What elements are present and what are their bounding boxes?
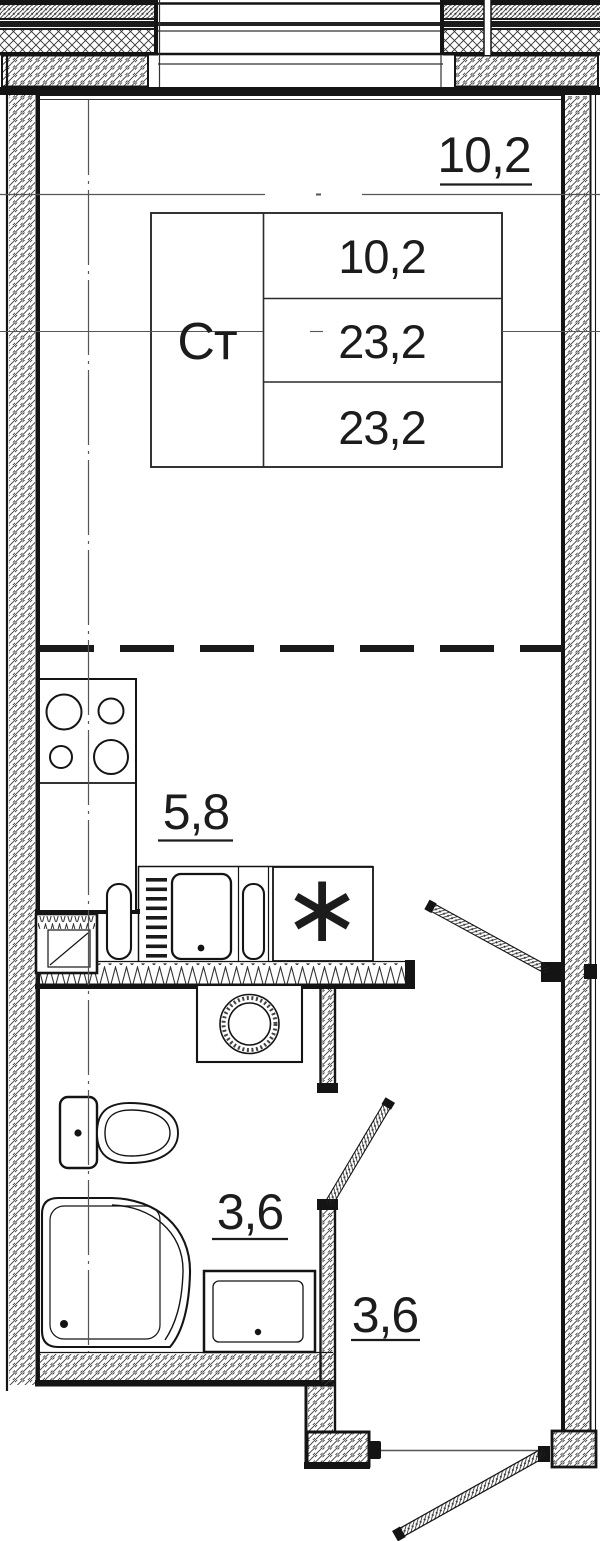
fridge-asterisk-icon: ∗ xyxy=(282,854,362,964)
washing-machine xyxy=(197,985,302,1062)
kitchen-area-label: 5,8 xyxy=(163,784,230,840)
hall-area-label: 3,6 xyxy=(352,1287,419,1343)
sink-drain-icon xyxy=(255,1329,261,1335)
bathroom-door-leaf xyxy=(323,1097,395,1208)
entry-threshold xyxy=(304,1380,538,1469)
cabinet-handle xyxy=(243,884,264,959)
bathroom-door-wall xyxy=(317,989,338,1432)
living-area-label: 10,2 xyxy=(437,127,530,183)
stove xyxy=(39,679,136,911)
floor-plan-drawing: 10,2 Ст 10,2 23,2 23,2 5,8 3,6 3,6 ∗ xyxy=(0,0,600,1541)
bathroom-sink xyxy=(204,1271,315,1352)
bathroom-bottom-wall xyxy=(35,1353,336,1387)
unit-area-row2: 23,2 xyxy=(338,315,425,368)
cabinet-handle xyxy=(107,884,131,959)
unit-type-label: Ст xyxy=(177,313,237,371)
top-right-pier xyxy=(440,0,600,95)
floor-plan: 10,2 Ст 10,2 23,2 23,2 5,8 3,6 3,6 ∗ xyxy=(0,0,600,1541)
toilet-bowl xyxy=(97,1103,178,1163)
unit-area-row1: 10,2 xyxy=(338,230,425,283)
hall-door-leaf xyxy=(424,900,551,976)
bathroom-area-label: 3,6 xyxy=(217,1184,284,1240)
shower-drain-icon xyxy=(60,1320,68,1328)
right-wall xyxy=(538,92,596,1467)
drainboard xyxy=(146,878,167,958)
unit-area-row3: 23,2 xyxy=(338,401,425,454)
toilet xyxy=(60,1097,178,1168)
top-left-pier xyxy=(0,0,158,95)
entry-door-jamb-right xyxy=(552,1431,596,1467)
top-wall xyxy=(38,87,565,100)
left-wall xyxy=(7,55,40,1391)
sink-drain-icon xyxy=(198,945,205,952)
entry-door-leaf xyxy=(392,1447,548,1541)
shower xyxy=(42,1198,190,1347)
